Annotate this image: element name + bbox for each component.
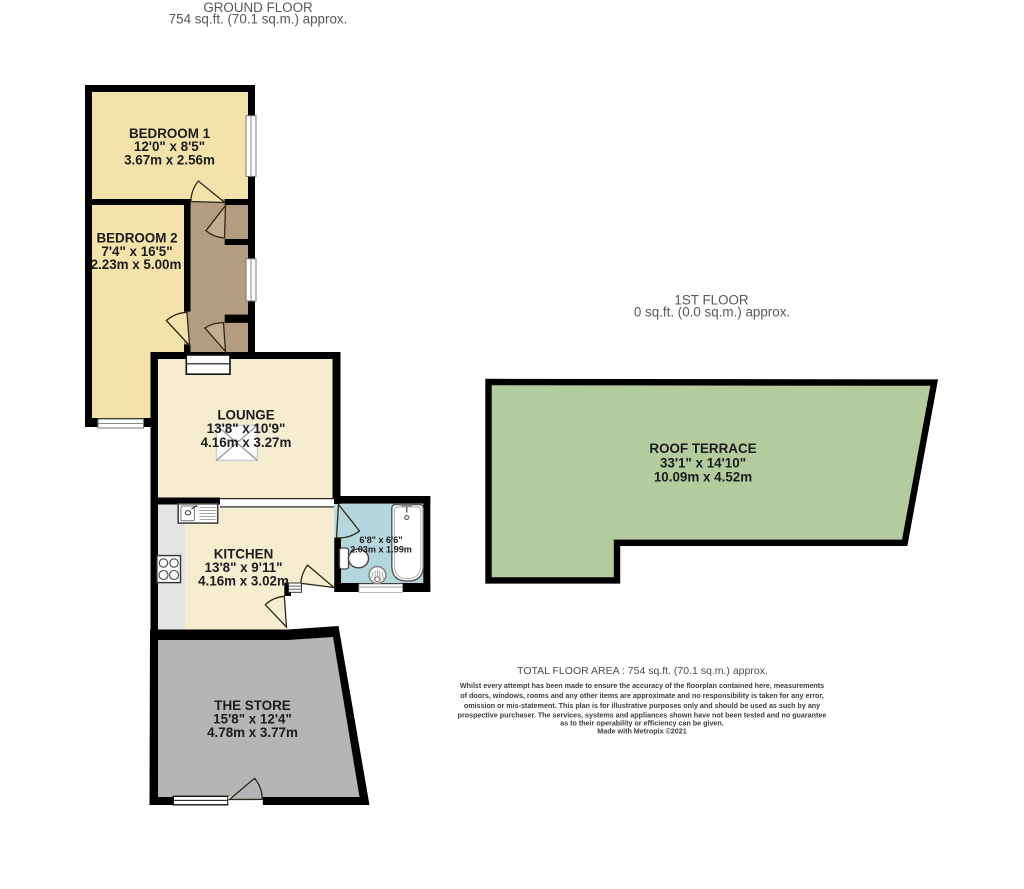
svg-text:2.03m x 1.99m: 2.03m x 1.99m xyxy=(350,545,412,555)
svg-text:4.16m x 3.02m: 4.16m x 3.02m xyxy=(198,573,289,588)
svg-text:2.23m x 5.00m: 2.23m x 5.00m xyxy=(91,257,182,272)
svg-text:prospective purchaser. The ser: prospective purchaser. The services, sys… xyxy=(458,711,827,719)
svg-text:Made with Metropix ©2021: Made with Metropix ©2021 xyxy=(597,728,686,736)
svg-text:0 sq.ft. (0.0 sq.m.) approx.: 0 sq.ft. (0.0 sq.m.) approx. xyxy=(634,305,790,320)
svg-text:6'8" x 6'6": 6'8" x 6'6" xyxy=(359,535,402,545)
svg-text:10.09m x 4.52m: 10.09m x 4.52m xyxy=(654,469,752,484)
svg-text:Whilst every attempt has been: Whilst every attempt has been made to en… xyxy=(460,682,824,690)
svg-text:33'1" x 14'10": 33'1" x 14'10" xyxy=(660,456,746,471)
svg-text:as to their operability or eff: as to their operability or efficiency ca… xyxy=(560,720,724,728)
svg-text:4.16m x 3.27m: 4.16m x 3.27m xyxy=(201,435,292,450)
svg-text:4.78m x 3.77m: 4.78m x 3.77m xyxy=(207,725,298,740)
svg-text:omission or mis-statement. Thi: omission or mis-statement. This plan is … xyxy=(464,702,820,710)
svg-text:of doors, windows, rooms and a: of doors, windows, rooms and any other i… xyxy=(460,692,823,700)
svg-text:754 sq.ft. (70.1 sq.m.) approx: 754 sq.ft. (70.1 sq.m.) approx. xyxy=(169,12,348,27)
svg-text:TOTAL FLOOR AREA : 754 sq.ft.: TOTAL FLOOR AREA : 754 sq.ft. (70.1 sq.m… xyxy=(517,665,768,677)
svg-text:3.67m x 2.56m: 3.67m x 2.56m xyxy=(124,152,215,167)
svg-text:ROOF TERRACE: ROOF TERRACE xyxy=(649,441,756,456)
